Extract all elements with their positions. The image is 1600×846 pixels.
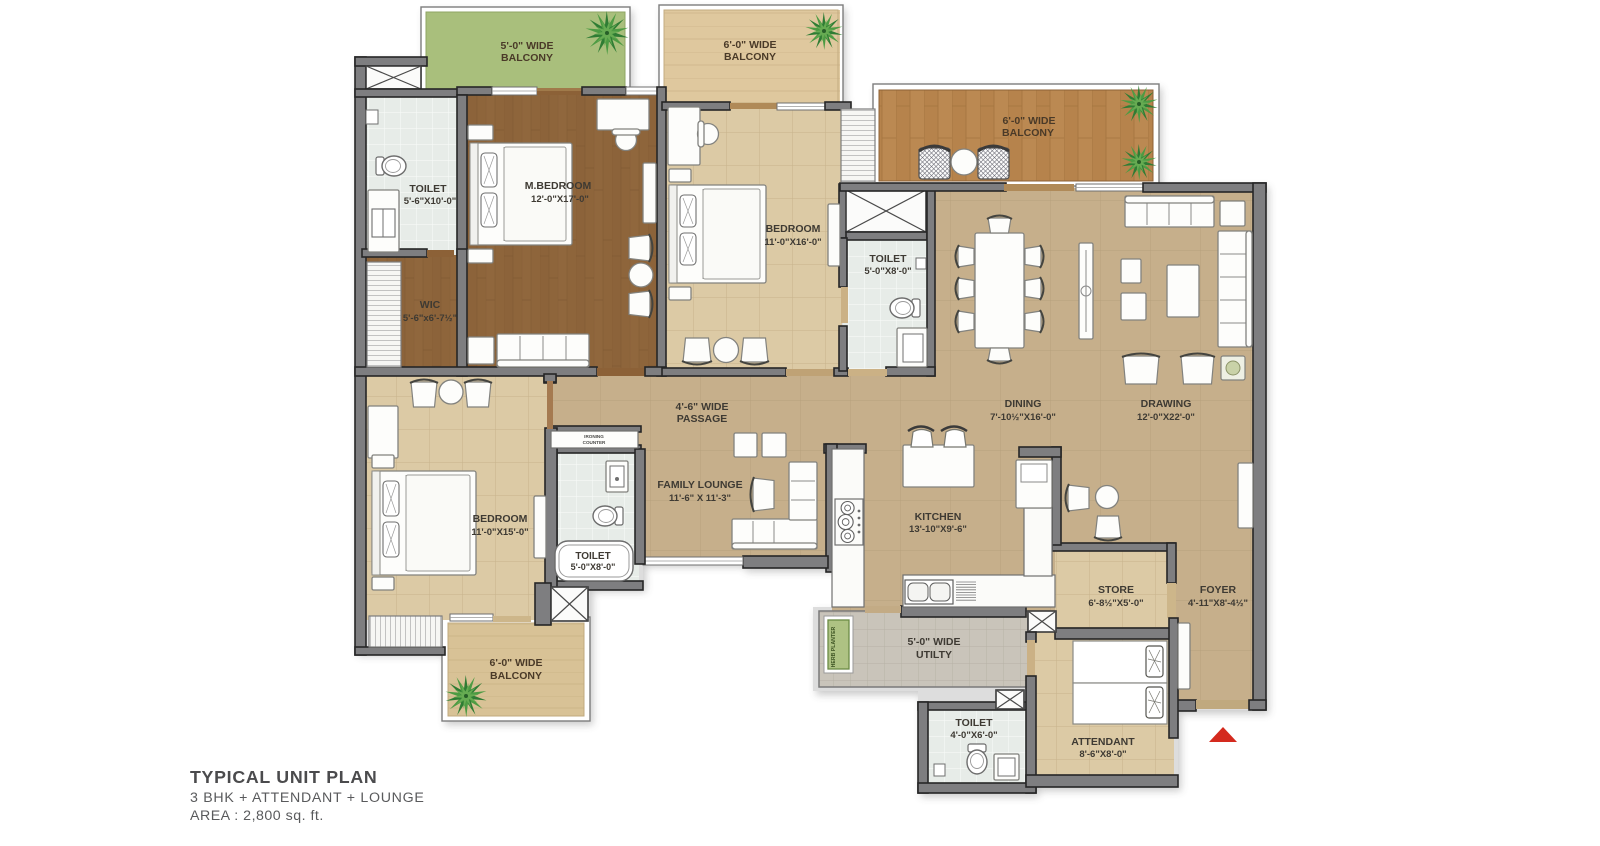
svg-text:TOILET: TOILET bbox=[409, 183, 447, 195]
svg-text:M.BEDROOM: M.BEDROOM bbox=[525, 180, 592, 192]
svg-text:5'-6"X10'-0": 5'-6"X10'-0" bbox=[404, 196, 457, 207]
svg-text:PASSAGE: PASSAGE bbox=[677, 413, 728, 425]
svg-text:TOILET: TOILET bbox=[575, 551, 610, 562]
svg-text:BALCONY: BALCONY bbox=[724, 51, 776, 63]
svg-text:11'-6" X 11'-3": 11'-6" X 11'-3" bbox=[669, 493, 731, 504]
svg-text:12'-0"X22'-0": 12'-0"X22'-0" bbox=[1137, 412, 1195, 423]
svg-text:6'-0" WIDE: 6'-0" WIDE bbox=[724, 39, 777, 51]
svg-text:5'-0"X8'-0": 5'-0"X8'-0" bbox=[571, 562, 616, 572]
svg-text:8'-6"X8'-0": 8'-6"X8'-0" bbox=[1079, 749, 1126, 760]
svg-text:3 BHK + ATTENDANT + LOUNGE: 3 BHK + ATTENDANT + LOUNGE bbox=[190, 790, 425, 806]
svg-text:11'-0"X15'-0": 11'-0"X15'-0" bbox=[471, 527, 528, 538]
svg-text:6'-8½"X5'-0": 6'-8½"X5'-0" bbox=[1088, 598, 1143, 609]
svg-text:4'-6" WIDE: 4'-6" WIDE bbox=[676, 401, 729, 413]
svg-text:12'-0"X17'-0": 12'-0"X17'-0" bbox=[531, 194, 589, 205]
svg-text:HERB PLANTER: HERB PLANTER bbox=[831, 626, 837, 667]
svg-text:13'-10"X9'-6": 13'-10"X9'-6" bbox=[909, 524, 967, 535]
svg-text:AREA : 2,800 sq. ft.: AREA : 2,800 sq. ft. bbox=[190, 808, 324, 824]
svg-text:BALCONY: BALCONY bbox=[1002, 127, 1054, 139]
svg-text:FAMILY LOUNGE: FAMILY LOUNGE bbox=[657, 479, 742, 491]
svg-text:COUNTER: COUNTER bbox=[583, 440, 606, 445]
svg-text:5'-0" WIDE: 5'-0" WIDE bbox=[908, 636, 961, 648]
svg-text:7'-10½"X16'-0": 7'-10½"X16'-0" bbox=[990, 412, 1056, 423]
svg-text:4'-11"X8'-4½": 4'-11"X8'-4½" bbox=[1188, 598, 1248, 609]
svg-text:BALCONY: BALCONY bbox=[501, 52, 553, 64]
svg-text:STORE: STORE bbox=[1098, 584, 1134, 596]
svg-text:6'-0" WIDE: 6'-0" WIDE bbox=[490, 657, 543, 669]
svg-text:UTILTY: UTILTY bbox=[916, 649, 952, 661]
svg-text:5'-0"X8'-0": 5'-0"X8'-0" bbox=[864, 266, 911, 277]
svg-text:ATTENDANT: ATTENDANT bbox=[1071, 736, 1135, 748]
svg-text:WIC: WIC bbox=[420, 299, 441, 311]
svg-text:BEDROOM: BEDROOM bbox=[766, 223, 821, 235]
svg-text:IRONING: IRONING bbox=[584, 434, 604, 439]
svg-text:4'-0"X6'-0": 4'-0"X6'-0" bbox=[950, 730, 997, 741]
svg-text:DINING: DINING bbox=[1005, 398, 1042, 410]
svg-text:KITCHEN: KITCHEN bbox=[915, 511, 962, 523]
svg-text:5'-6"x6'-7½": 5'-6"x6'-7½" bbox=[403, 313, 457, 324]
svg-text:6'-0" WIDE: 6'-0" WIDE bbox=[1003, 115, 1056, 127]
svg-text:TYPICAL UNIT PLAN: TYPICAL UNIT PLAN bbox=[190, 767, 377, 787]
svg-text:11'-0"X16'-0": 11'-0"X16'-0" bbox=[764, 237, 821, 248]
svg-text:5'-0" WIDE: 5'-0" WIDE bbox=[501, 40, 554, 52]
svg-text:FOYER: FOYER bbox=[1200, 584, 1237, 596]
svg-text:DRAWING: DRAWING bbox=[1141, 398, 1192, 410]
svg-text:TOILET: TOILET bbox=[869, 253, 907, 265]
svg-text:BALCONY: BALCONY bbox=[490, 670, 542, 682]
svg-text:BEDROOM: BEDROOM bbox=[473, 513, 528, 525]
svg-text:TOILET: TOILET bbox=[955, 717, 993, 729]
